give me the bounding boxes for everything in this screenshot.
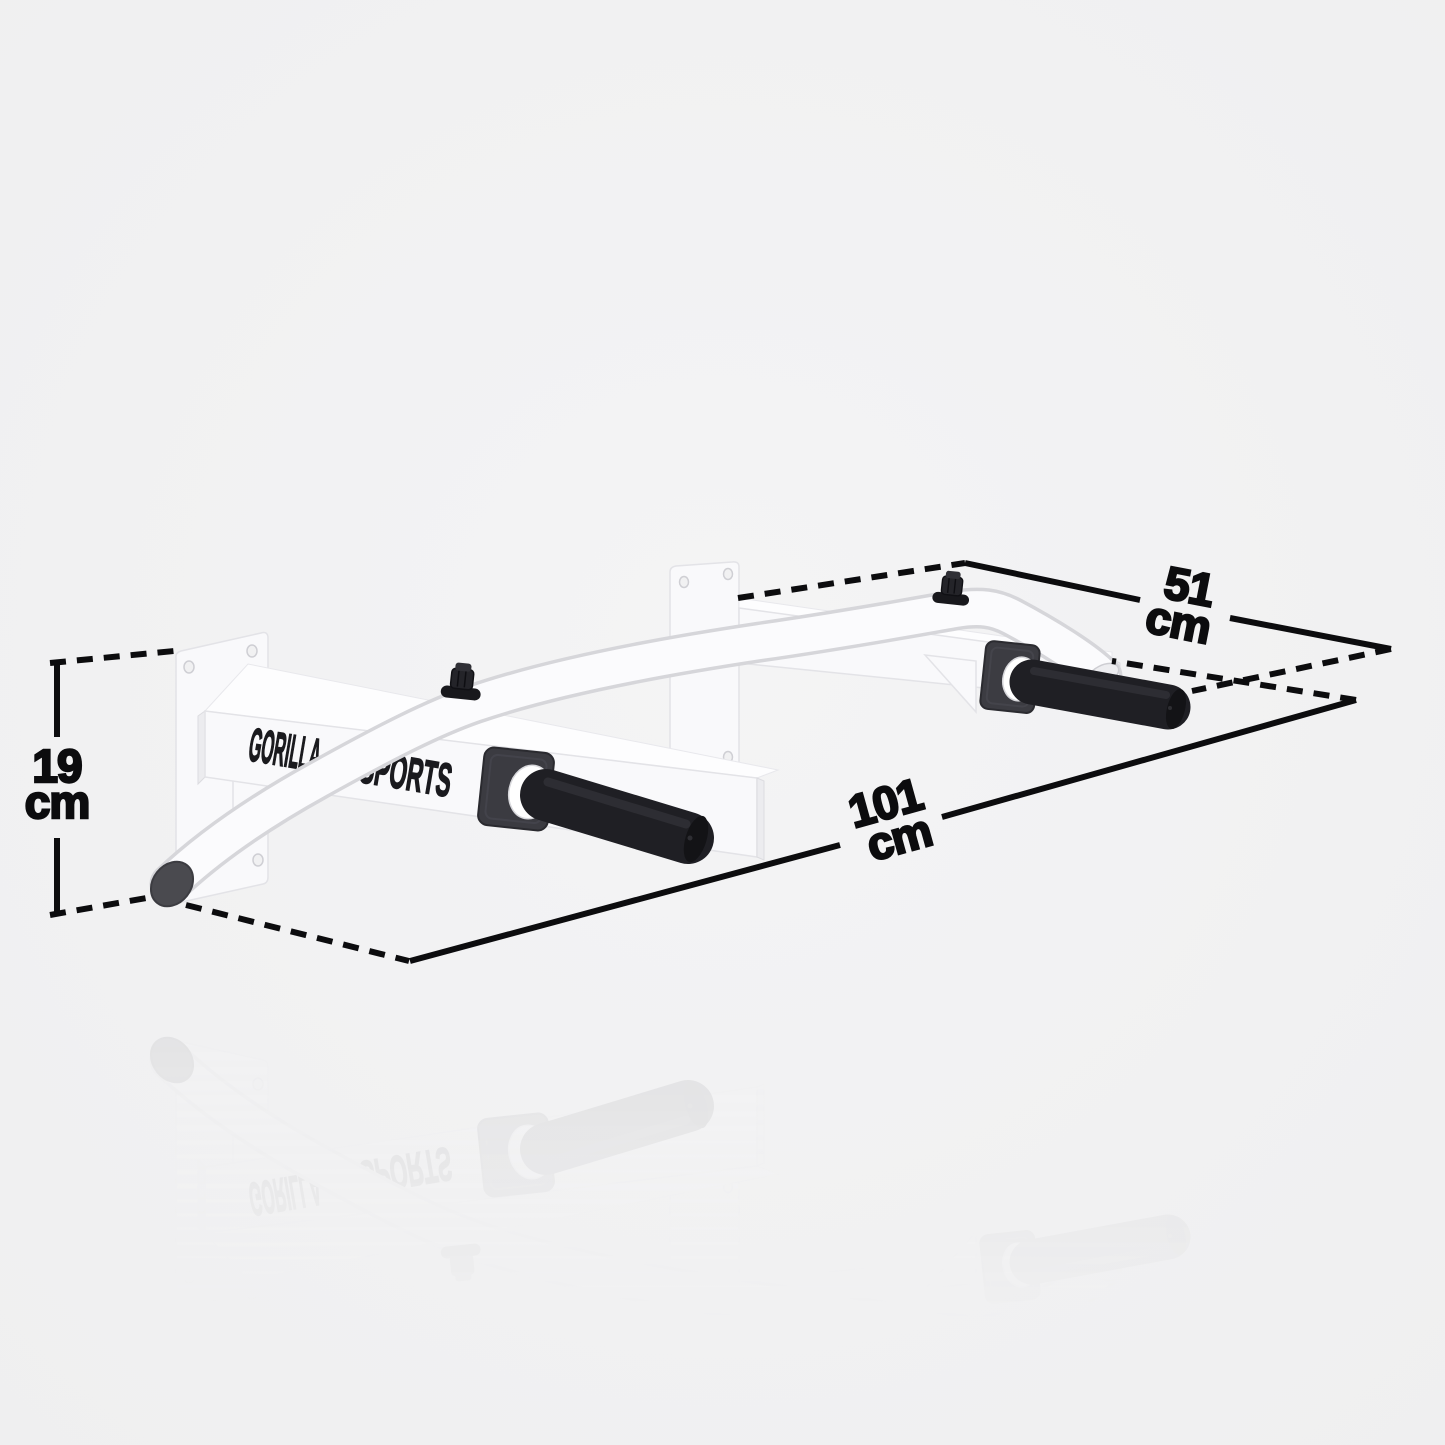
screw-hole <box>680 577 689 588</box>
screw-hole <box>184 661 194 673</box>
dim-height-unit: cm <box>25 776 89 828</box>
screw-hole <box>253 854 263 866</box>
screw-hole <box>724 569 733 580</box>
screw-hole <box>247 645 257 657</box>
product-image: GORILLA SPORTS <box>0 0 1445 1445</box>
grip-end-hole-right <box>1168 706 1172 710</box>
grip-end-hole-left <box>688 836 693 841</box>
